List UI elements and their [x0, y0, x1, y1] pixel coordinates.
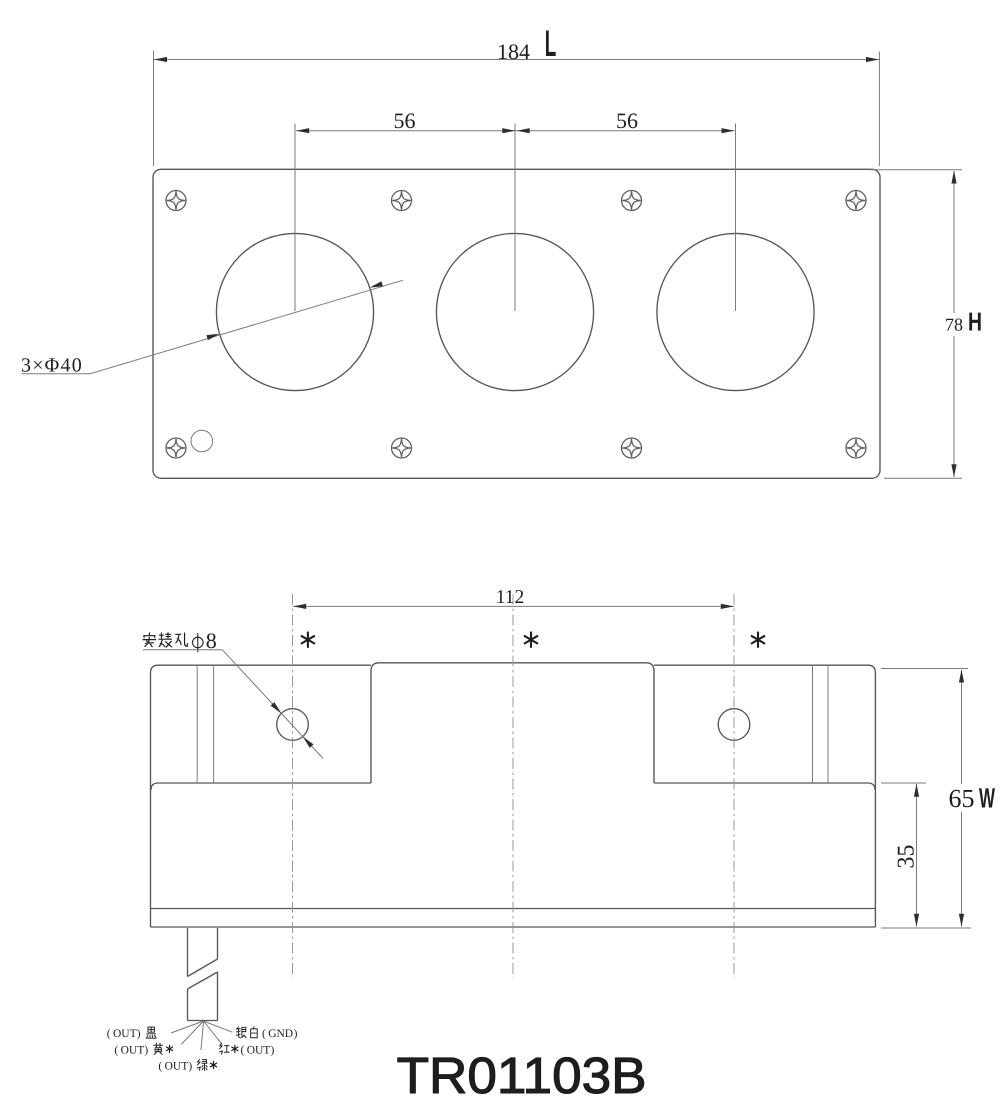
svg-text:56: 56	[616, 108, 638, 133]
svg-text:OUT: OUT	[247, 1044, 271, 1056]
svg-text:(: (	[107, 1028, 111, 1040]
svg-text:3×Φ40: 3×Φ40	[21, 355, 83, 377]
svg-text:OUT: OUT	[121, 1044, 145, 1056]
svg-text:(: (	[262, 1028, 266, 1040]
svg-text:56: 56	[394, 108, 416, 133]
svg-text:TR01103B: TR01103B	[397, 1047, 647, 1104]
svg-text:OUT: OUT	[113, 1028, 137, 1040]
svg-text:78: 78	[945, 315, 963, 335]
svg-text:): )	[137, 1028, 141, 1040]
svg-text:112: 112	[496, 587, 525, 608]
svg-text:(: (	[158, 1061, 162, 1073]
svg-text:): )	[144, 1044, 148, 1056]
svg-text:(: (	[241, 1044, 245, 1056]
svg-text:W: W	[979, 783, 995, 814]
svg-text:H: H	[968, 307, 982, 337]
svg-text:): )	[271, 1044, 275, 1056]
svg-text:OUT: OUT	[165, 1061, 189, 1073]
svg-text:65: 65	[949, 784, 975, 813]
svg-text:35: 35	[894, 845, 920, 869]
svg-text:): )	[188, 1061, 192, 1073]
svg-text:L: L	[545, 23, 557, 64]
svg-text:): )	[294, 1028, 298, 1040]
svg-text:GND: GND	[268, 1028, 293, 1040]
svg-text:8: 8	[206, 628, 217, 653]
svg-text:(: (	[114, 1044, 118, 1056]
svg-text:184: 184	[497, 39, 530, 64]
